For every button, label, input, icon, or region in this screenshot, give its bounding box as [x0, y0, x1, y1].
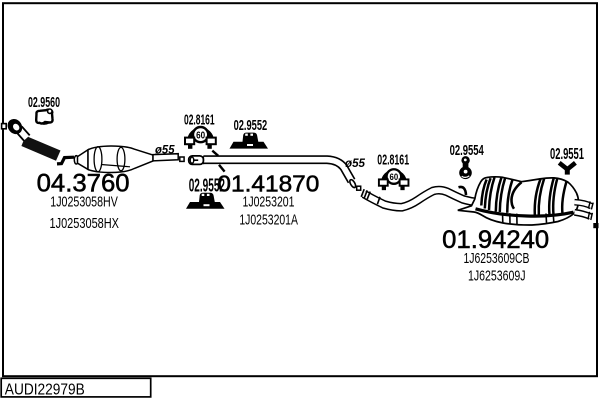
svg-text:ø55: ø55 [345, 158, 366, 170]
svg-text:1J0253201A: 1J0253201A [239, 212, 298, 229]
svg-text:02.8161: 02.8161 [377, 152, 409, 168]
svg-text:ø55: ø55 [155, 144, 175, 156]
svg-text:60: 60 [196, 130, 205, 141]
svg-text:1J0253058HV: 1J0253058HV [50, 194, 118, 211]
svg-text:02.9554: 02.9554 [450, 142, 485, 159]
svg-text:1J6253609CB: 1J6253609CB [464, 250, 530, 267]
svg-text:AUDI22979B: AUDI22979B [5, 381, 85, 398]
svg-text:1J0253201: 1J0253201 [243, 194, 295, 211]
svg-text:02.9552: 02.9552 [234, 117, 268, 134]
svg-text:02.9560: 02.9560 [28, 95, 60, 111]
svg-text:1J6253609J: 1J6253609J [468, 268, 526, 285]
svg-text:02.9551: 02.9551 [550, 146, 584, 163]
svg-text:1J0253058HX: 1J0253058HX [50, 215, 120, 232]
